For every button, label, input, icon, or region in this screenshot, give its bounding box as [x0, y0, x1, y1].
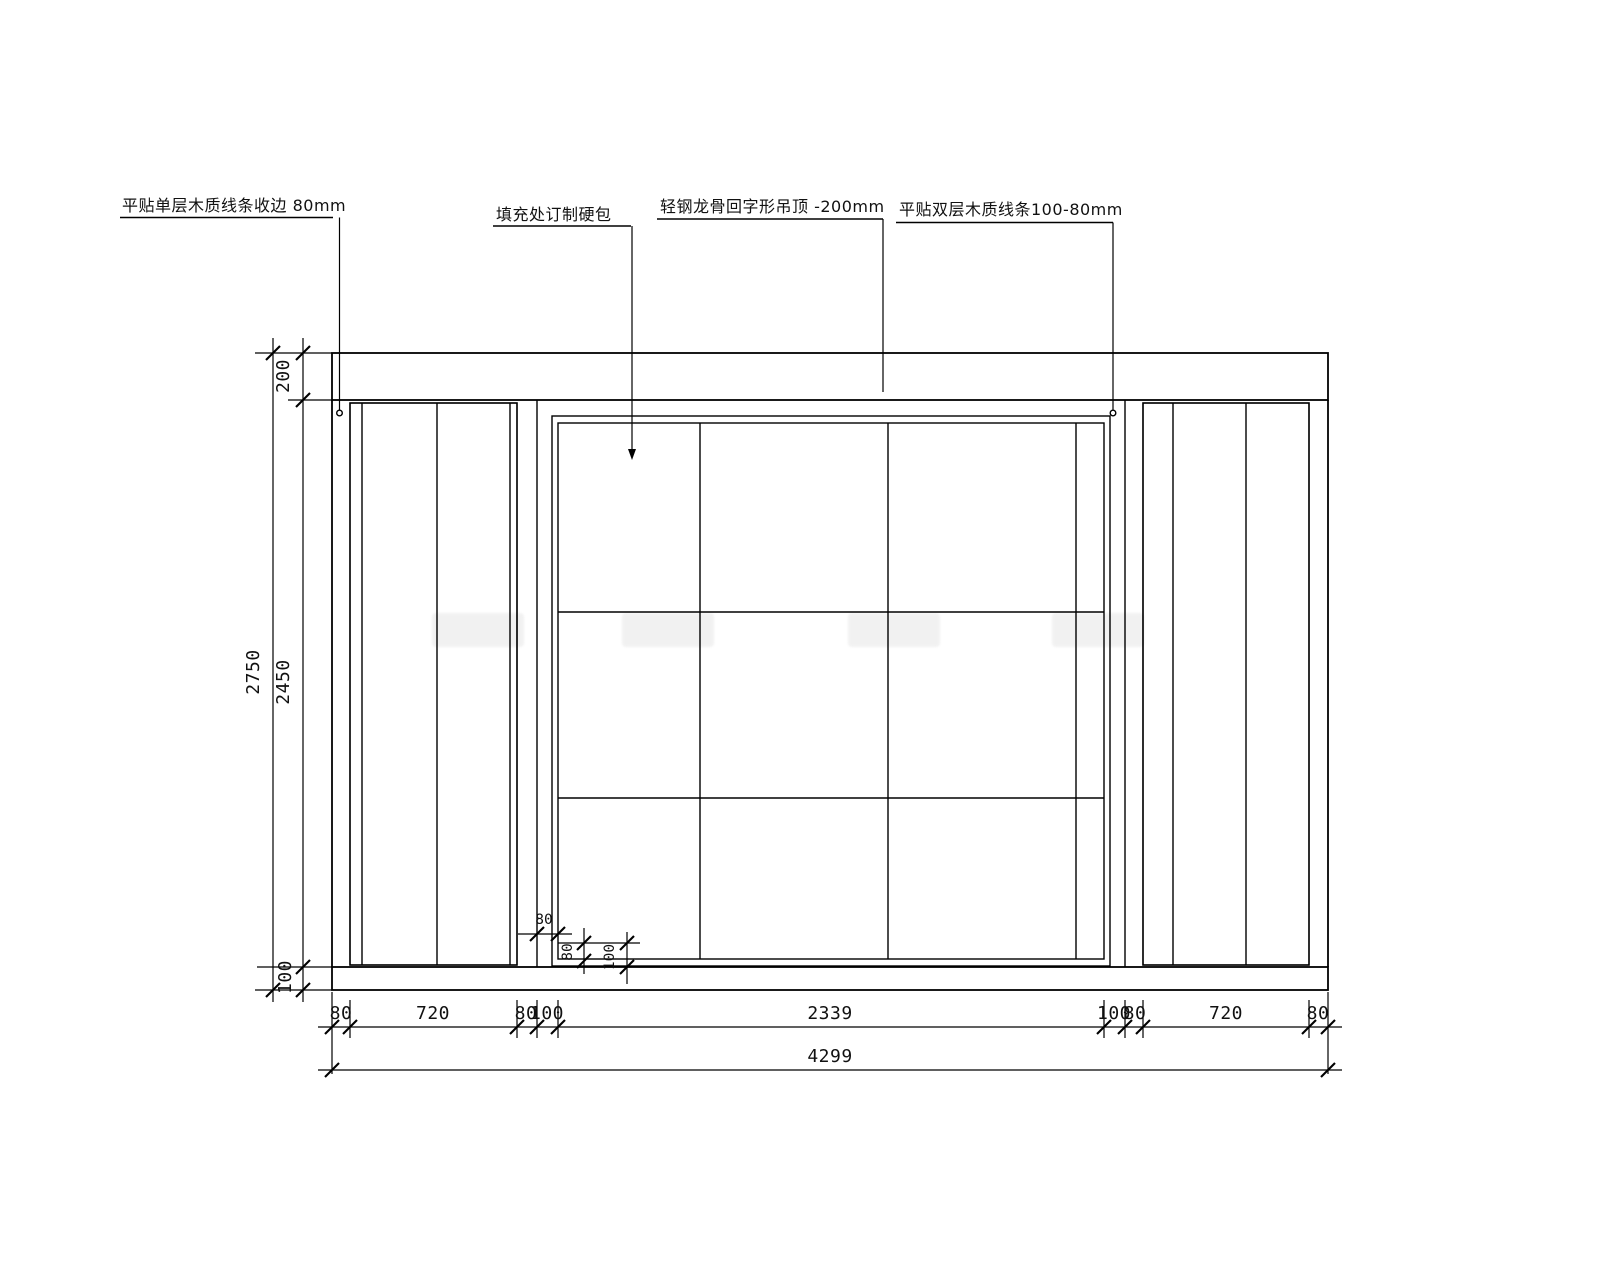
dim-seg-3: 100 [530, 1003, 564, 1024]
detail-dim-v100: 100 [602, 944, 618, 970]
callout-text: 填充处订制硬包 [496, 205, 612, 224]
right-louver-panel [1143, 403, 1309, 965]
callout-text: 平贴单层木质线条收边 80mm [122, 196, 346, 215]
callout-custom-hard-pack-infill: 填充处订制硬包 [493, 205, 636, 460]
leader-arrowhead [628, 449, 636, 460]
right-louver-frame [1143, 403, 1309, 965]
panel-outer-border [552, 416, 1110, 966]
callout-light-steel-keel-ceiling: 轻钢龙骨回字形吊顶 -200mm [657, 197, 885, 392]
elevation-outline [332, 353, 1328, 990]
detail-dim-h80: 80 [535, 912, 552, 928]
left-louver-slats [350, 403, 517, 965]
dim-seg-1: 720 [416, 1003, 450, 1024]
horizontal-dimensions: 80 720 80 100 2339 100 80 720 80 4299 [318, 992, 1342, 1077]
callout-single-layer-wood-trim: 平贴单层木质线条收边 80mm [120, 196, 346, 416]
dim-seg-4: 2339 [807, 1003, 852, 1024]
leader-end-dot [1110, 410, 1116, 416]
dim-total-width: 4299 [807, 1046, 852, 1067]
cad-drawing-canvas: 平贴单层木质线条收边 80mm 填充处订制硬包 轻钢龙骨回字形吊顶 -200mm… [0, 0, 1600, 1280]
callout-text: 轻钢龙骨回字形吊顶 -200mm [660, 197, 885, 216]
callout-double-layer-wood-trim: 平贴双层木质线条100-80mm [896, 200, 1123, 416]
trim-strips [537, 400, 1125, 967]
dim-middle-height: 2450 [273, 659, 294, 704]
ceiling-band [332, 353, 1328, 400]
center-hard-pack-panel [552, 416, 1110, 966]
left-louver-panel [350, 403, 517, 965]
dim-seg-8: 80 [1307, 1003, 1330, 1024]
dim-bottom-height: 100 [275, 960, 296, 994]
detail-dim-v80: 80 [560, 943, 576, 960]
dim-overall-height: 2750 [243, 649, 264, 694]
callout-text: 平贴双层木质线条100-80mm [899, 200, 1123, 219]
dim-seg-6: 80 [1124, 1003, 1147, 1024]
dim-seg-7: 720 [1209, 1003, 1243, 1024]
left-louver-frame [350, 403, 517, 965]
leader-end-dot [337, 410, 343, 416]
panel-inner-border [558, 423, 1104, 959]
dim-seg-0: 80 [330, 1003, 353, 1024]
watermark [432, 613, 1144, 647]
elevation-drawing: 平贴单层木质线条收边 80mm 填充处订制硬包 轻钢龙骨回字形吊顶 -200mm… [0, 0, 1600, 1280]
skirting-band [332, 967, 1328, 990]
vertical-dimensions: 2750 200 2450 100 [243, 338, 332, 1002]
dim-top-drop: 200 [273, 359, 294, 393]
right-louver-slats [1143, 403, 1309, 965]
